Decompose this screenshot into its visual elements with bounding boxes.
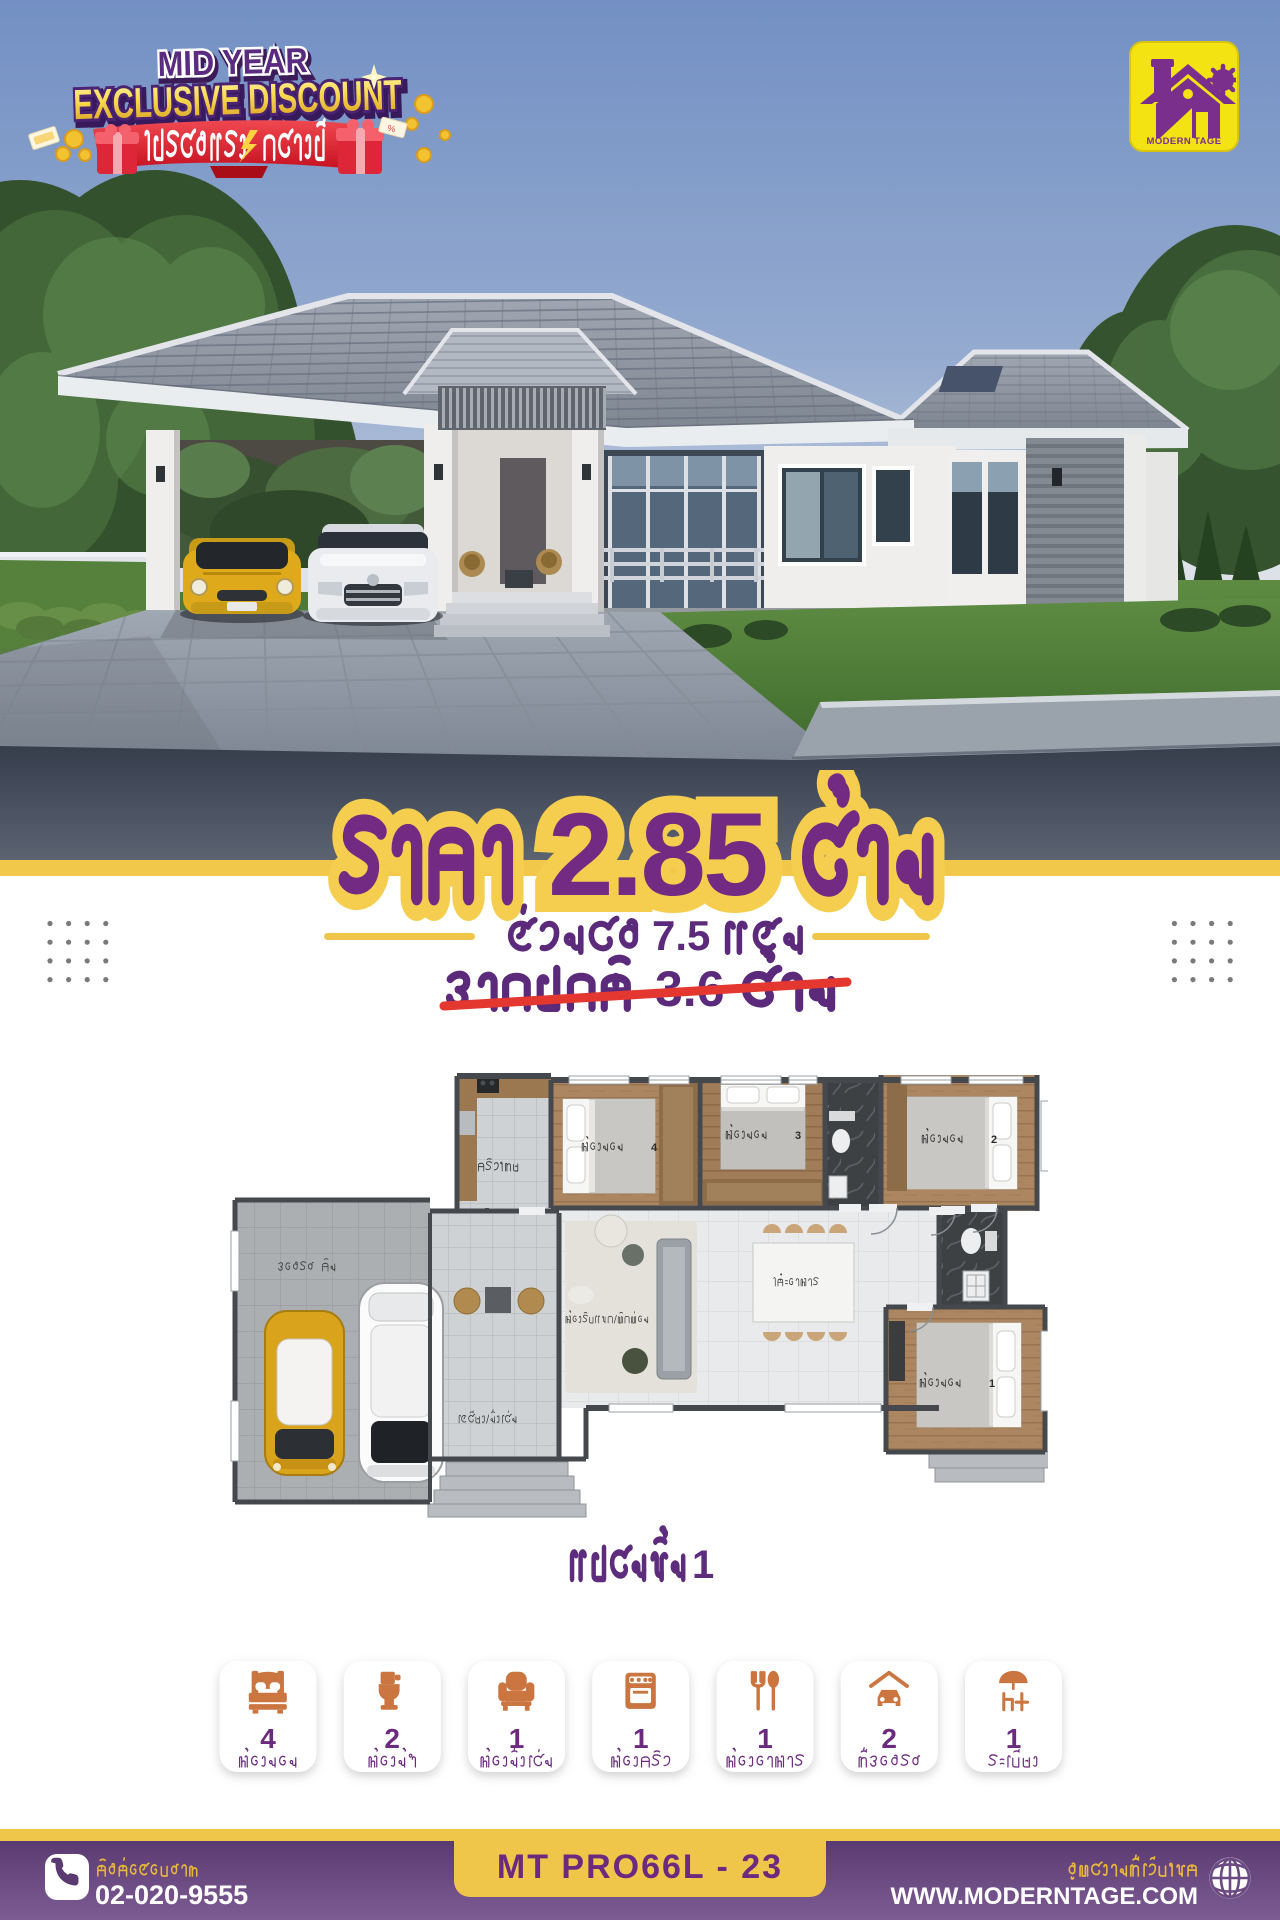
svg-text:4: 4 — [651, 1142, 658, 1154]
svg-text:1: 1 — [989, 1378, 995, 1390]
svg-text:MODERN TAGE: MODERN TAGE — [1147, 136, 1222, 147]
svg-text:02-020-9555: 02-020-9555 — [95, 1880, 248, 1910]
svg-text:7.5: 7.5 — [652, 912, 710, 959]
svg-text:3: 3 — [795, 1130, 801, 1142]
svg-text:MT PRO66L - 23: MT PRO66L - 23 — [497, 1848, 783, 1886]
svg-text:1: 1 — [633, 1723, 649, 1754]
svg-text:WWW.MODERNTAGE.COM: WWW.MODERNTAGE.COM — [890, 1883, 1198, 1910]
svg-text:1: 1 — [692, 1543, 714, 1587]
svg-text:2.85: 2.85 — [548, 789, 766, 921]
svg-text:2: 2 — [384, 1723, 400, 1754]
svg-text:2: 2 — [991, 1134, 997, 1146]
svg-text:4: 4 — [260, 1723, 276, 1754]
svg-text:2: 2 — [881, 1723, 897, 1754]
svg-text:1: 1 — [509, 1723, 525, 1754]
svg-text:1: 1 — [757, 1723, 773, 1754]
